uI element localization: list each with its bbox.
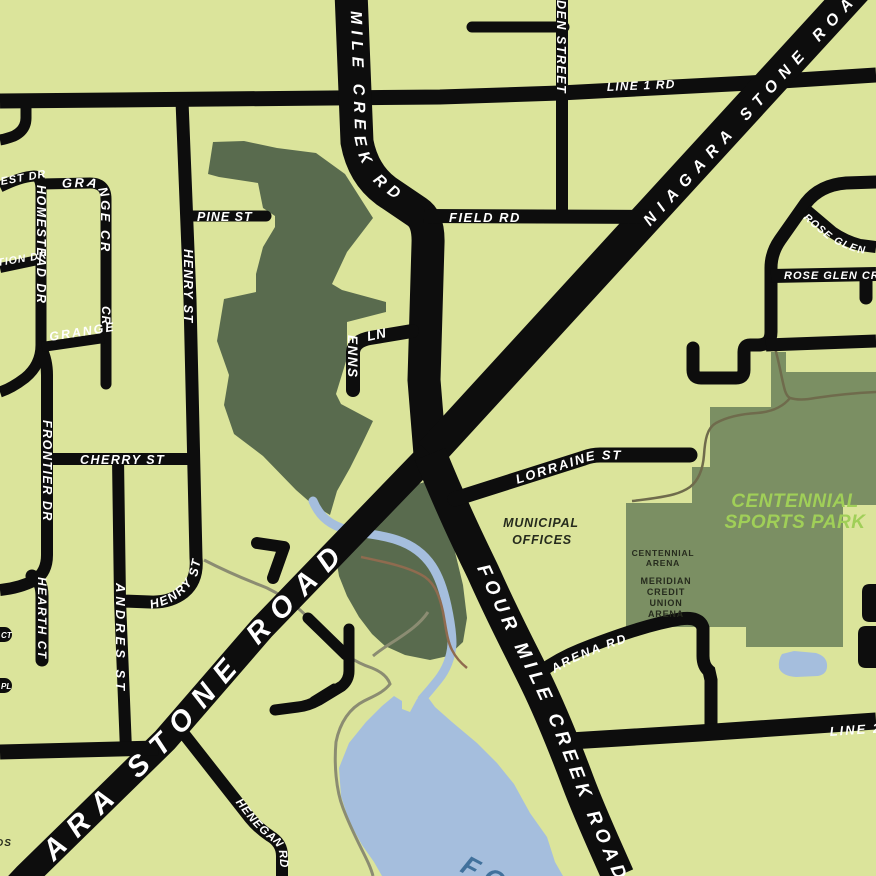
svg-text:DEN STREET: DEN STREET bbox=[554, 0, 568, 94]
svg-text:CENTENNIALSPORTS PARK: CENTENNIALSPORTS PARK bbox=[725, 491, 867, 533]
svg-text:PL: PL bbox=[1, 682, 11, 691]
svg-text:PINE ST: PINE ST bbox=[197, 210, 253, 224]
svg-text:ANDRES ST: ANDRES ST bbox=[113, 582, 128, 694]
svg-text:LINE 1 RD: LINE 1 RD bbox=[607, 77, 676, 94]
svg-text:ROSE GLEN CR: ROSE GLEN CR bbox=[784, 270, 876, 282]
svg-text:HENRY ST: HENRY ST bbox=[181, 249, 195, 324]
svg-text:CR: CR bbox=[99, 306, 113, 325]
svg-text:CHERRY ST: CHERRY ST bbox=[80, 453, 165, 467]
svg-text:HOMESTEAD DR: HOMESTEAD DR bbox=[34, 185, 48, 304]
svg-text:ENNS: ENNS bbox=[345, 335, 360, 379]
svg-text:FIELD RD: FIELD RD bbox=[449, 210, 521, 225]
svg-text:HEARTH CT: HEARTH CT bbox=[35, 577, 49, 660]
svg-text:FRONTIER DR: FRONTIER DR bbox=[40, 420, 54, 522]
svg-text:CT: CT bbox=[1, 631, 13, 640]
svg-text:DS: DS bbox=[0, 838, 12, 849]
